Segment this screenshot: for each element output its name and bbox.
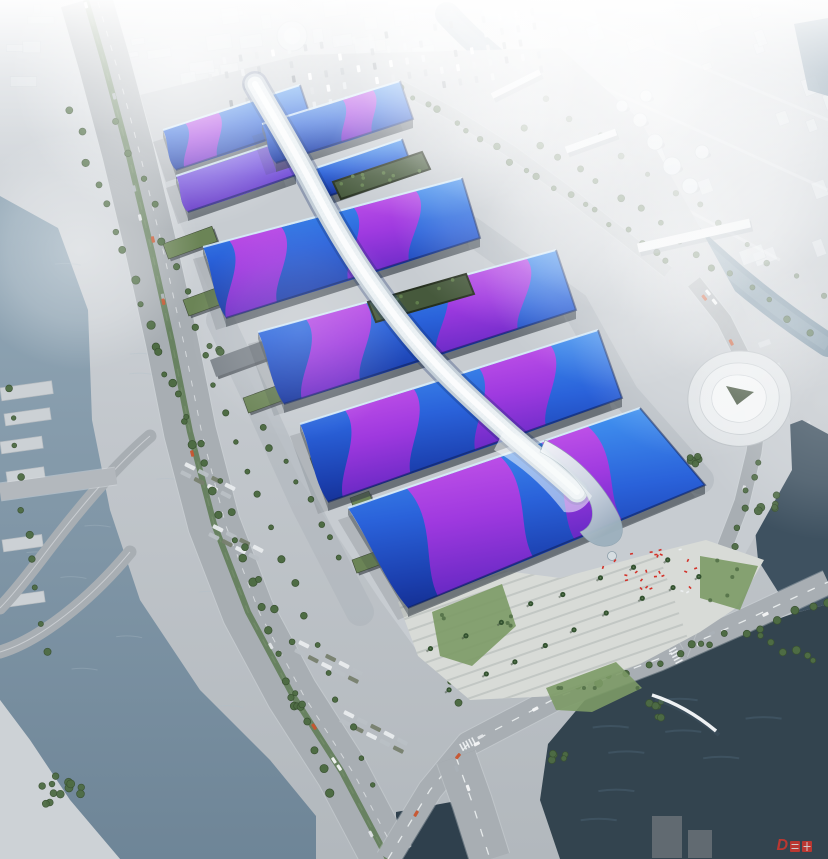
red-figure — [654, 554, 657, 556]
red-figure — [654, 576, 657, 578]
rendering-canvas — [0, 0, 828, 859]
red-figure — [650, 551, 653, 553]
aerial-city-rendering: D — [0, 0, 828, 859]
